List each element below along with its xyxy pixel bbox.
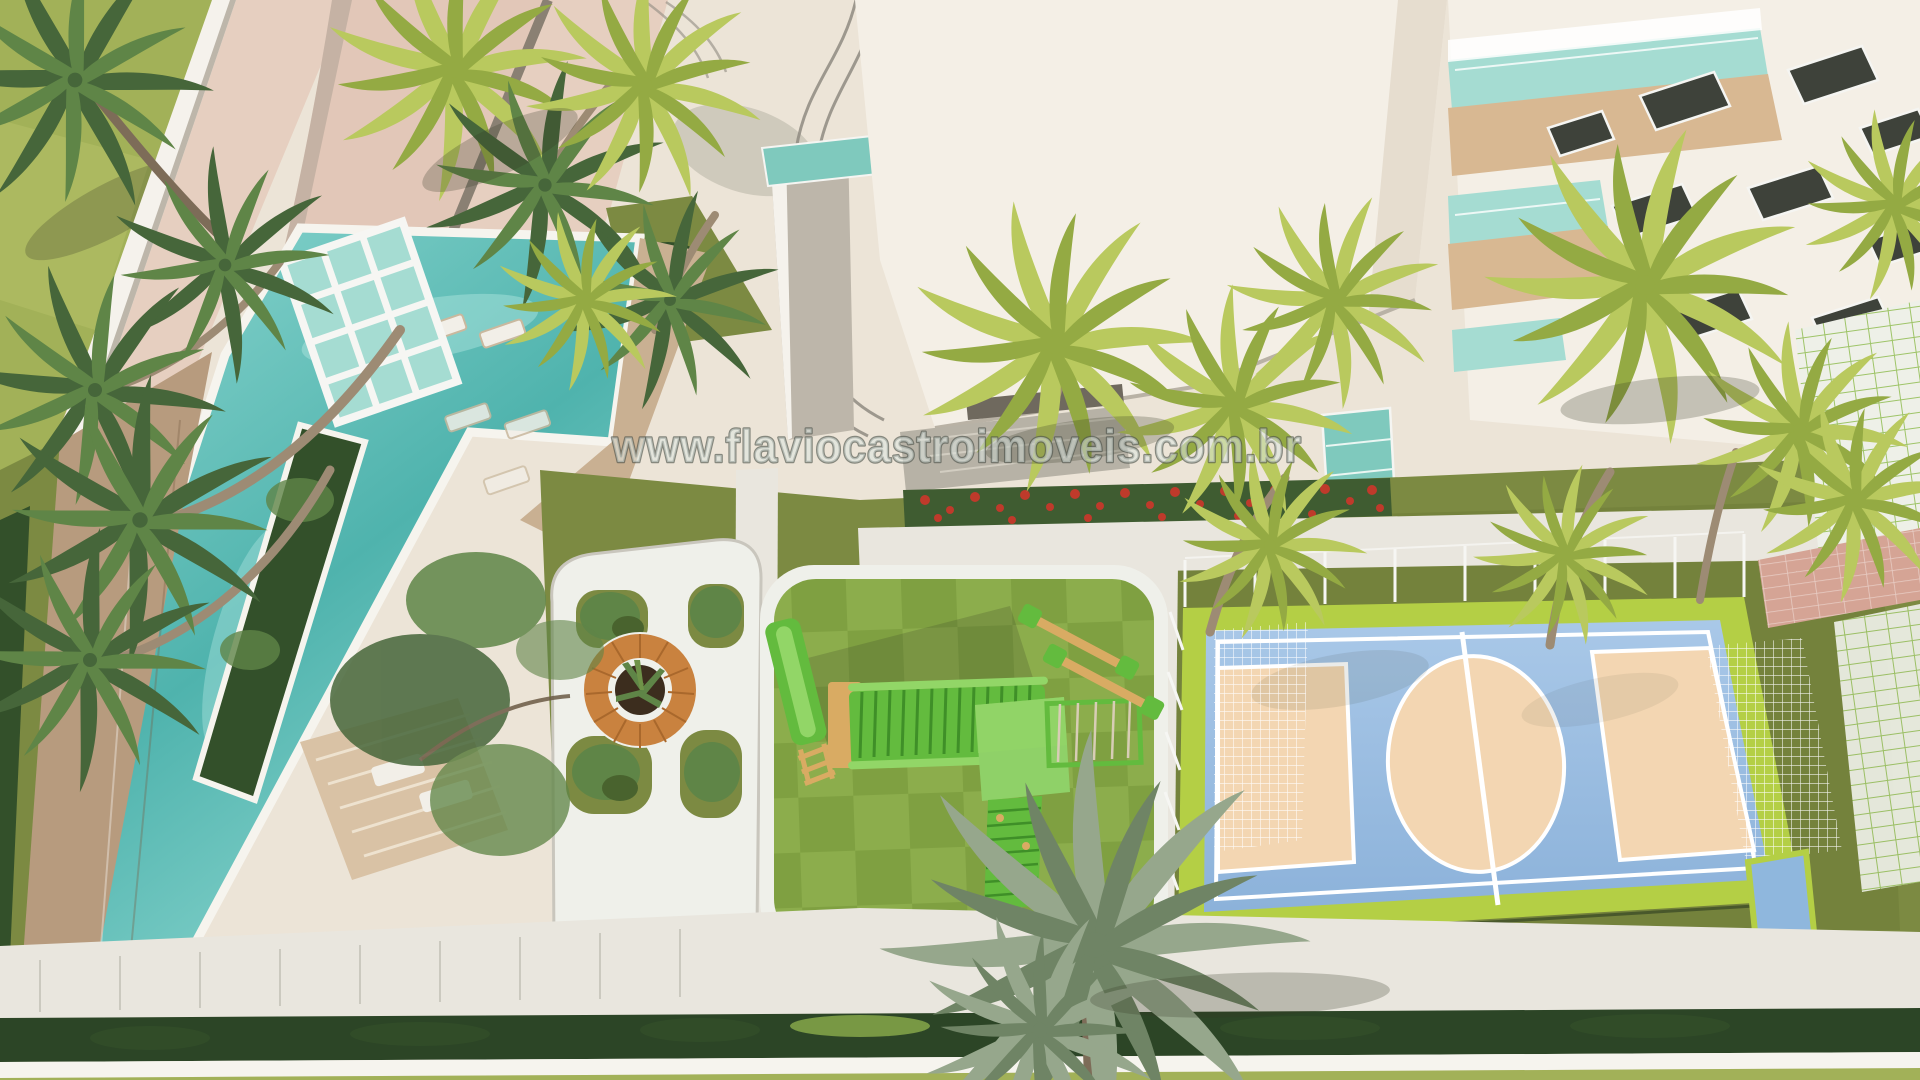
render-scene: www.flaviocastroimoveis.com.br — [0, 0, 1920, 1080]
aerial-render: www.flaviocastroimoveis.com.br — [0, 0, 1920, 1080]
watermark-text: www.flaviocastroimoveis.com.br — [611, 420, 1302, 472]
goal-left — [1214, 622, 1308, 852]
